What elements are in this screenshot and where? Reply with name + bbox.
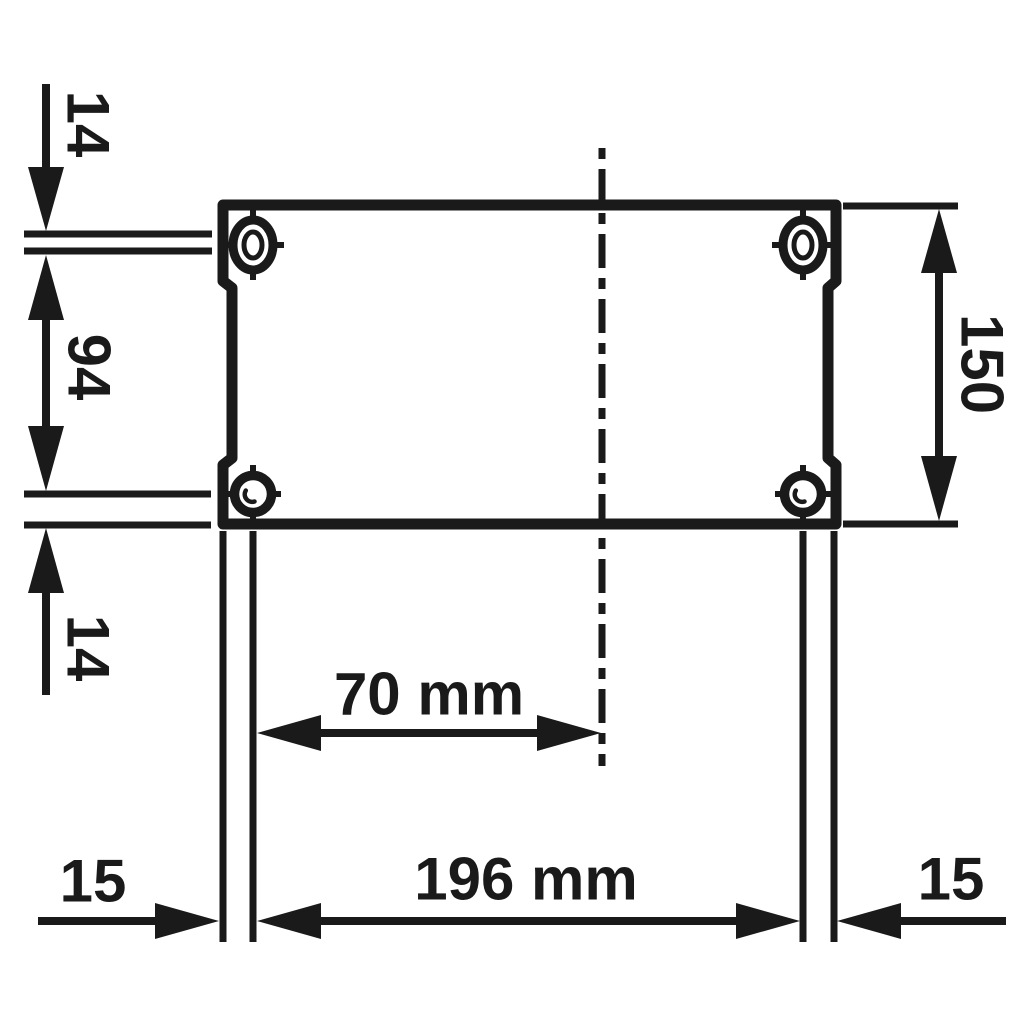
- dim-plate-height: 150: [921, 209, 1016, 521]
- dim-hole-spacing-horizontal: 196 mm: [257, 846, 800, 940]
- dim-left-margin: 15: [38, 848, 219, 940]
- dim-label-hole-spacing-horizontal: 196 mm: [414, 846, 637, 913]
- dim-bottom-edge-to-hole: 14: [28, 528, 122, 695]
- arrowhead-left: [257, 903, 321, 939]
- hole-inner-slot: [794, 232, 812, 258]
- arrowhead-right: [537, 715, 601, 751]
- dim-hole-to-centerline: 70 mm: [257, 661, 601, 752]
- mounting-plate-outline: [223, 205, 836, 524]
- dim-label-bottom-edge-to-hole: 14: [55, 615, 122, 682]
- dim-label-right-margin: 15: [918, 846, 985, 913]
- arrowhead-up: [28, 528, 64, 593]
- arrowhead-down: [28, 167, 64, 231]
- dim-top-edge-to-hole: 14: [28, 84, 122, 231]
- arrowhead-down: [921, 456, 957, 521]
- dim-hole-spacing-vertical: 94: [28, 255, 123, 491]
- hole-inner-slot: [244, 232, 262, 258]
- dim-label-top-edge-to-hole: 14: [55, 91, 122, 158]
- arrowhead-left: [837, 903, 901, 939]
- arrowhead-right: [155, 903, 219, 939]
- technical-drawing-canvas: 14 94 14 150 70 mm 15 196 mm: [0, 0, 1024, 1024]
- dim-right-margin: 15: [837, 846, 1006, 940]
- dim-label-plate-height: 150: [949, 314, 1016, 414]
- arrowhead-right: [736, 903, 800, 939]
- arrowhead-up: [921, 209, 957, 273]
- arrowhead-left: [257, 715, 321, 751]
- arrowhead-up: [28, 255, 64, 320]
- mounting-dimensions-drawing: 14 94 14 150 70 mm 15 196 mm: [0, 0, 1024, 1024]
- arrowhead-down: [28, 426, 64, 491]
- dim-label-hole-spacing-vertical: 94: [56, 334, 123, 401]
- dim-label-hole-to-centerline: 70 mm: [334, 661, 524, 728]
- dim-label-left-margin: 15: [60, 848, 127, 915]
